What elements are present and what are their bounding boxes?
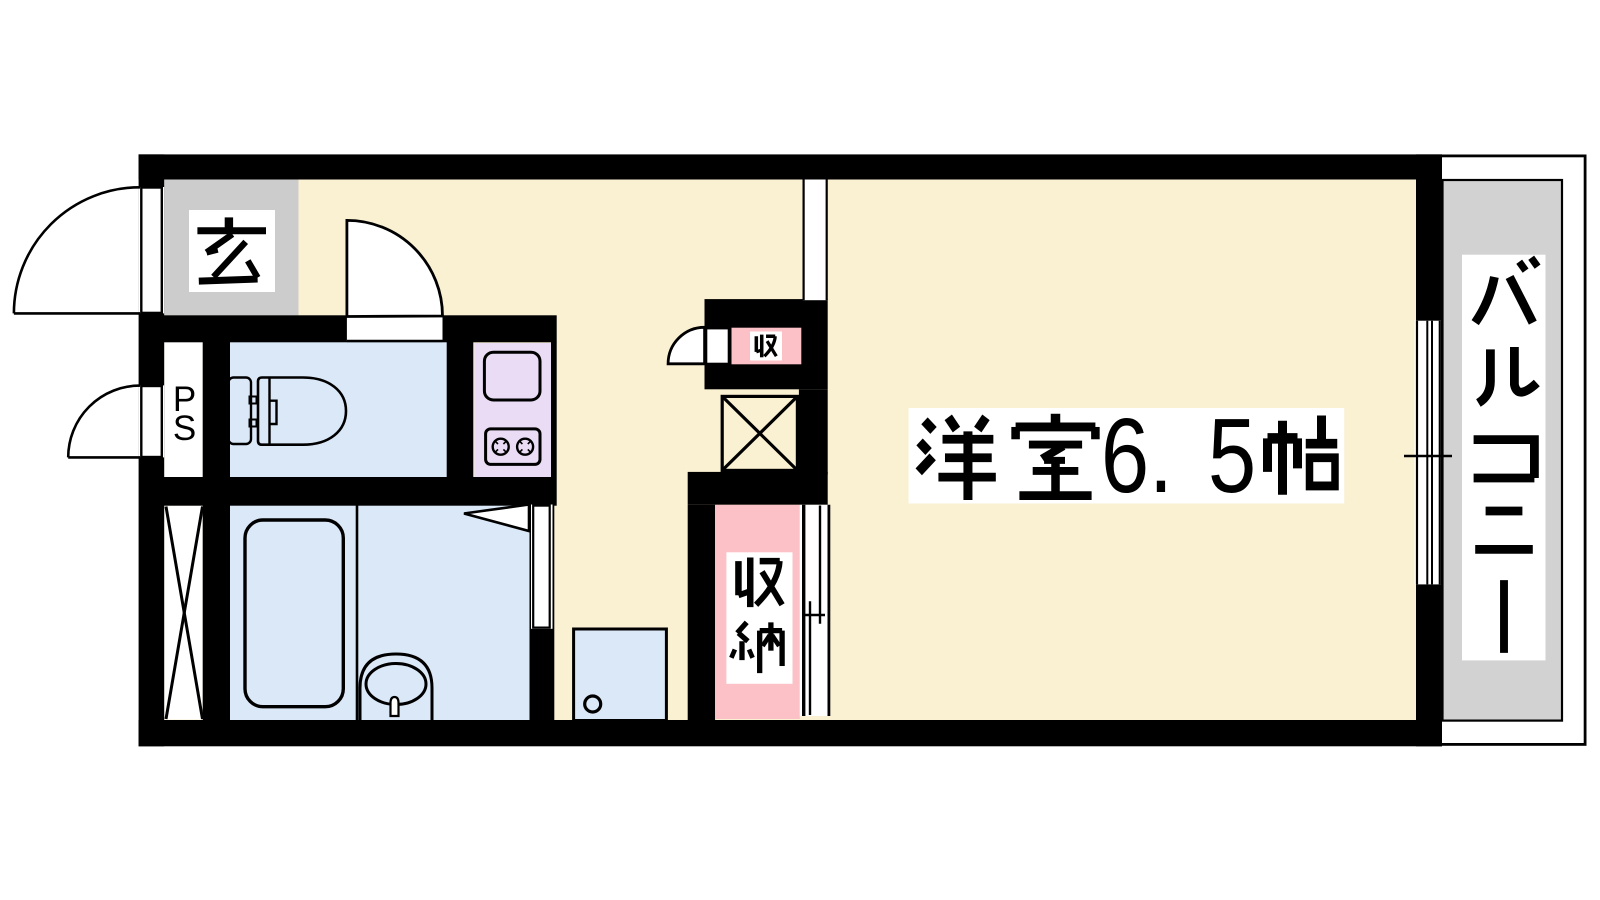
svg-text:5: 5	[1208, 396, 1256, 515]
svg-text:6: 6	[1101, 396, 1149, 515]
svg-text:S: S	[173, 409, 196, 448]
svg-text:.: .	[1149, 396, 1173, 515]
